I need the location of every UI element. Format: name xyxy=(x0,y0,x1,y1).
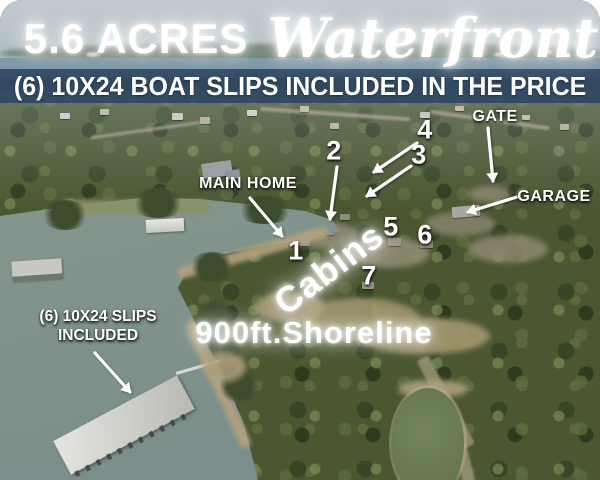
shoreline-label: 900ft.Shoreline xyxy=(195,315,432,351)
cabin xyxy=(340,214,350,220)
cabin-number-2: 2 xyxy=(326,136,342,167)
cabin-number-5: 5 xyxy=(383,212,399,243)
gate-label: GATE xyxy=(472,108,517,126)
slips-callout-line2: INCLUDED xyxy=(39,326,156,345)
neighbor-house xyxy=(247,110,257,116)
slips-callout-line1: (6) 10X24 SLIPS xyxy=(39,307,156,326)
neighbor-house xyxy=(300,106,309,112)
houseboat-dock xyxy=(146,218,185,233)
garage-label: GARAGE xyxy=(517,188,590,206)
headline-waterfront: Waterfront xyxy=(268,6,599,70)
neighbor-house xyxy=(330,123,339,129)
main-home-label: MAIN HOME xyxy=(199,175,297,193)
shore-trees xyxy=(188,252,236,282)
cabin-number-6: 6 xyxy=(417,220,433,251)
banner-text: (6) 10X24 BOAT SLIPS INCLUDED IN THE PRI… xyxy=(14,71,586,102)
neighbor-house xyxy=(200,117,210,124)
neighbor-house xyxy=(522,115,530,120)
neighbor-house xyxy=(60,113,70,119)
shore-trees xyxy=(40,200,90,230)
headline-acreage: 5.6 ACRES xyxy=(24,15,249,63)
neighbor-house xyxy=(560,124,569,130)
neighbor-house xyxy=(455,106,464,111)
shore-trees xyxy=(235,196,295,224)
cabin-number-4: 4 xyxy=(417,115,433,146)
dock-landing xyxy=(202,352,246,382)
shore-trees xyxy=(130,188,186,218)
banner-band: (6) 10X24 BOAT SLIPS INCLUDED IN THE PRI… xyxy=(0,69,600,103)
slips-callout: (6) 10X24 SLIPS INCLUDED xyxy=(39,307,156,345)
clearing xyxy=(468,235,548,263)
listing-graphic: (6) 10X24 BOAT SLIPS INCLUDED IN THE PRI… xyxy=(0,0,600,480)
gate-clearing xyxy=(468,186,510,202)
neighbor-dock xyxy=(11,258,62,281)
neighbor-house xyxy=(100,109,109,115)
neighbor-house xyxy=(172,113,183,120)
